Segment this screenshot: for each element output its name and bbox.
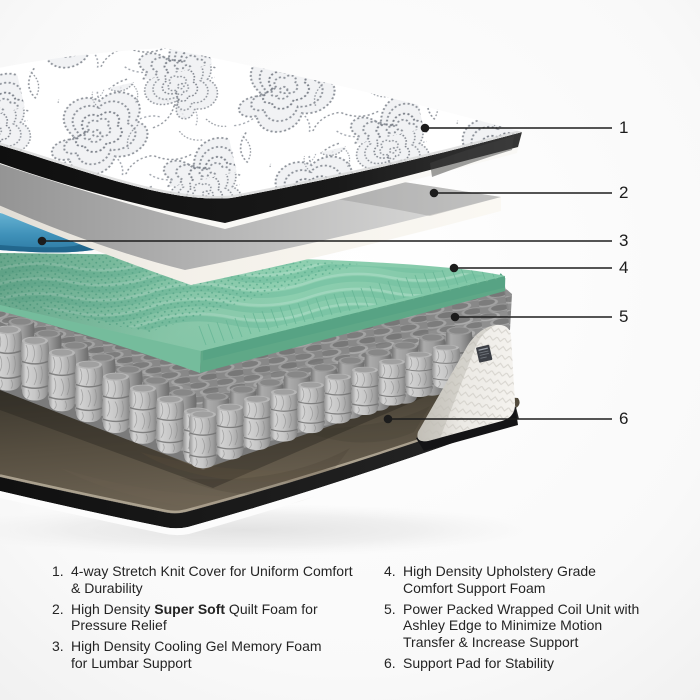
svg-text:1: 1 (619, 118, 628, 137)
svg-text:4: 4 (619, 258, 628, 277)
svg-text:6: 6 (619, 409, 628, 428)
svg-text:5: 5 (619, 307, 628, 326)
svg-text:2: 2 (619, 183, 628, 202)
svg-text:3: 3 (619, 231, 628, 250)
